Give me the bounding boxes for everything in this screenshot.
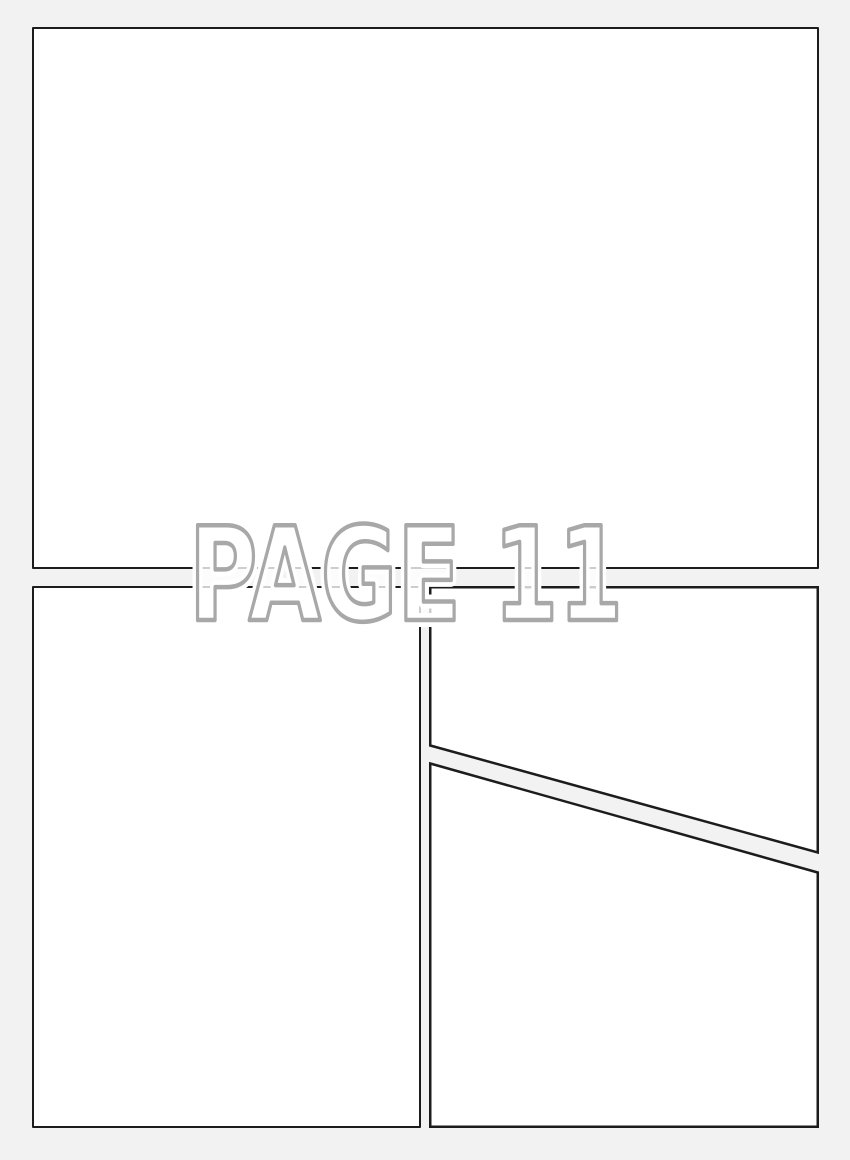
comic-page: PAGE 11 PAGE 11 PAGE 11 <box>0 0 850 1160</box>
panel-top <box>32 27 819 569</box>
panel-bottom-left <box>32 586 421 1128</box>
panel-bottom-right-group <box>429 586 819 1128</box>
